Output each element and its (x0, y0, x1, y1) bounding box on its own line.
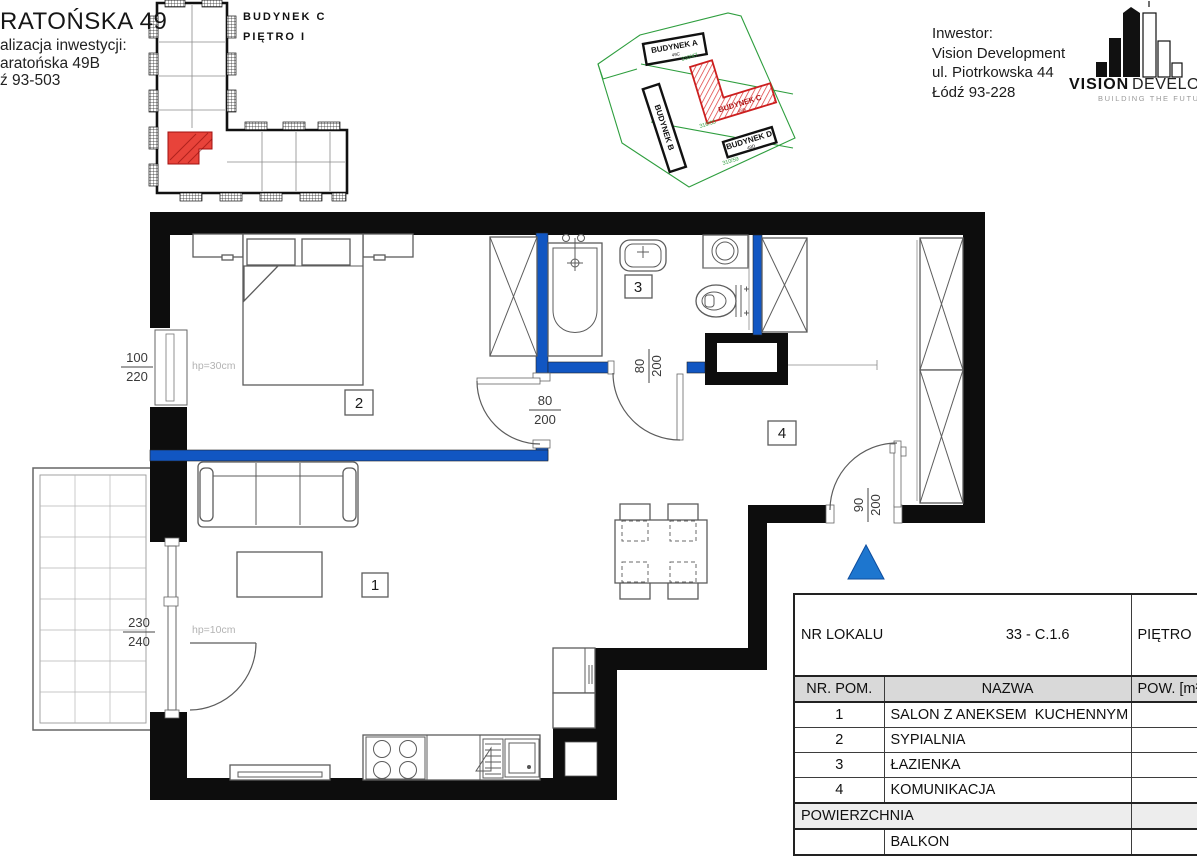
room-name: SALON Z ANEKSEM KUCHENNYM (884, 702, 1131, 728)
room-name: SYPIALNIA (884, 728, 1131, 753)
unit-data-table: NR LOKALU 33 - C.1.6 PIĘTRO NR. POM. NAZ… (793, 593, 1197, 856)
investor-label: Inwestor: (932, 24, 1065, 44)
svg-text:200: 200 (534, 412, 556, 427)
room-no: 2 (794, 728, 884, 753)
dimension-entrance-door: 90 200 (851, 488, 883, 522)
room-no: 3 (794, 753, 884, 778)
floor-header: PIĘTRO (1131, 594, 1197, 676)
balcony (33, 468, 153, 730)
entrance-arrow (848, 545, 884, 579)
dimension-bedroom-door: 80 200 (529, 393, 561, 427)
room-no: 1 (794, 702, 884, 728)
svg-text:200: 200 (868, 494, 883, 516)
table-balkon-row: BALKON 5 (794, 829, 1197, 855)
logo-tagline: BUILDING THE FUTURE (1098, 94, 1197, 103)
balkon-area: 5 (1131, 829, 1197, 855)
site-building-b: BUDYNEK B (643, 84, 686, 172)
nightstand-left (193, 234, 243, 260)
lokal-label: NR LOKALU (801, 627, 883, 643)
partition-walls-blue (150, 233, 762, 461)
dimension-window: 100 220 (121, 350, 153, 384)
balkon-label: BALKON (884, 829, 1131, 855)
room-no: 4 (794, 778, 884, 804)
bedroom-door (477, 378, 540, 444)
svg-text:1: 1 (371, 577, 379, 594)
svg-text:3: 3 (634, 279, 642, 296)
washbasin (620, 240, 666, 271)
fridge-cabinets (553, 648, 595, 728)
investor-name: Vision Development (932, 44, 1065, 64)
table-row: 4 KOMUNIKACJA 14 (794, 778, 1197, 804)
col-header-name: NAZWA (884, 676, 1131, 702)
hp-annotation-living: hp=10cm (192, 624, 236, 636)
door-jambs (533, 361, 902, 523)
room-label-hall: 4 (768, 421, 796, 445)
floorplan-page: { "colors": { "wall_blue": "#1156c2", "a… (0, 0, 1197, 832)
coffee-table (237, 552, 322, 597)
svg-text:230: 230 (128, 615, 150, 630)
hall-wardrobe-left (762, 238, 807, 332)
kitchen-shaft (565, 742, 597, 776)
room-area: 25 (1131, 702, 1197, 728)
parcel-number-2: 310/33 (699, 119, 717, 130)
nightstand-right (363, 234, 413, 260)
col-header-area: POW. [m²] (1131, 676, 1197, 702)
room-area: 13 (1131, 728, 1197, 753)
bedroom-wardrobe (490, 237, 537, 356)
logo-buildings-icon (1096, 1, 1182, 77)
hallway: 4 (762, 238, 963, 503)
overview-floor-label: PIĘTRO I (243, 31, 306, 43)
duct-shaft (705, 333, 788, 385)
total-area: 58 (1131, 803, 1197, 829)
svg-text:80: 80 (632, 359, 647, 373)
svg-text:80: 80 (538, 393, 552, 408)
site-plan: BUDYNEK A 49C BUDYNEK B BUDYNEK C 49B BU… (598, 13, 795, 187)
bathroom-door (613, 373, 683, 440)
svg-text:4: 4 (778, 425, 786, 442)
room-label-bathroom: 3 (625, 275, 652, 298)
project-title: RATOŃSKA 49 (0, 8, 167, 36)
location-line-2: aratońska 49B (0, 55, 100, 73)
room-name: KOMUNIKACJA (884, 778, 1131, 804)
investor-block: Inwestor: Vision Development ul. Piotrko… (932, 24, 1065, 103)
room-label-bedroom: 2 (345, 390, 373, 415)
investor-city: Łódź 93-228 (932, 83, 1065, 103)
table-row: 2 SYPIALNIA 13 (794, 728, 1197, 753)
table-header-row: NR. POM. NAZWA POW. [m²] (794, 676, 1197, 702)
svg-text:200: 200 (649, 355, 664, 377)
kitchen-counter (363, 735, 540, 780)
room-area: 14 (1131, 778, 1197, 804)
overview-building-label: BUDYNEK C (243, 11, 326, 23)
dimension-bathroom-door: 80 200 (632, 349, 664, 383)
logo-word-development: DEVELOPMENT (1132, 76, 1197, 93)
svg-text:240: 240 (128, 634, 150, 649)
table-row: 3 ŁAZIENKA 4 (794, 753, 1197, 778)
investor-street: ul. Piotrkowska 44 (932, 63, 1065, 83)
location-line-3: ź 93-503 (0, 72, 60, 90)
table-row: 1 SALON Z ANEKSEM KUCHENNYM 25 (794, 702, 1197, 728)
hall-wardrobe-right (917, 238, 963, 503)
bedroom-window (150, 328, 190, 407)
site-building-d: BUDYNEK D 49D (723, 127, 776, 157)
balkon-empty-cell (794, 829, 884, 855)
sofa (198, 462, 358, 527)
washing-machine (703, 235, 748, 268)
room-name: ŁAZIENKA (884, 753, 1131, 778)
col-header-no: NR. POM. (794, 676, 884, 702)
vision-development-logo: VISION DEVELOPMENT BUILDING THE FUTURE (1069, 1, 1197, 103)
logo-word-vision: VISION (1069, 76, 1129, 93)
toilet (696, 285, 749, 317)
double-bed (243, 234, 363, 385)
tv-stand (230, 765, 330, 780)
room-label-living: 1 (362, 573, 388, 597)
location-line-1: alizacja inwestycji: (0, 37, 127, 55)
svg-text:220: 220 (126, 369, 148, 384)
total-label: POWIERZCHNIA (794, 803, 1131, 829)
lokal-value: 33 - C.1.6 (1006, 627, 1070, 643)
site-building-a: BUDYNEK A 49C (643, 33, 707, 64)
bathtub (548, 235, 602, 357)
table-total-row: POWIERZCHNIA 58 (794, 803, 1197, 829)
svg-text:100: 100 (126, 350, 148, 365)
svg-text:2: 2 (355, 395, 363, 412)
site-building-c: BUDYNEK C 49B (690, 46, 776, 123)
room-area: 4 (1131, 753, 1197, 778)
bedroom: 2 hp=30cm (192, 234, 537, 415)
hp-annotation-bedroom: hp=30cm (192, 360, 236, 372)
table-row-lokal: NR LOKALU 33 - C.1.6 PIĘTRO (794, 594, 1197, 676)
dining-set (615, 504, 707, 599)
living-room: 1 hp=10cm (192, 462, 707, 780)
svg-text:90: 90 (851, 498, 866, 512)
